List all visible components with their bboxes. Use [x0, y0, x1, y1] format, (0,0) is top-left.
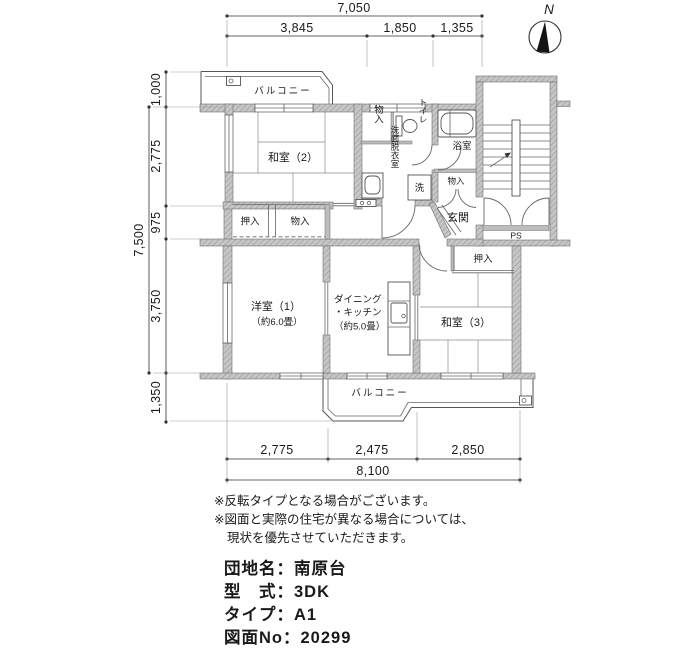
- window-dk-balcony: [347, 373, 387, 379]
- closet3-label: 押入: [473, 253, 493, 265]
- dim-top-seg3: 1,355: [440, 21, 473, 35]
- info-drawing-number: 図面No：20299: [224, 628, 351, 647]
- kitchen-counter-icon: [388, 282, 410, 355]
- washitsu2-label: 和室（2）: [268, 150, 318, 164]
- storage-mid-label: 物入: [290, 216, 310, 228]
- dim-bottom-seg3: 2,850: [451, 443, 484, 457]
- landing-doors: [484, 198, 549, 225]
- closet-mid-label: 押入: [240, 216, 260, 228]
- note-line-3: 現状を優先させていただきます。: [227, 531, 413, 545]
- scale-icon: [356, 200, 376, 207]
- bathtub-icon: [438, 110, 476, 137]
- dk-label-2: ・キッチン: [334, 308, 382, 319]
- dim-top-seg2: 1,850: [383, 21, 416, 35]
- yoshitsu1-label: 洋室（1）: [251, 299, 301, 313]
- info-plan-type: タイプ：A1: [224, 604, 317, 624]
- dim-left-seg2: 2,775: [149, 139, 163, 172]
- stair-rail: [512, 120, 520, 196]
- note-line-2: ※図面と実際の住宅が異なる場合については、: [214, 512, 474, 527]
- entry-label: 玄関: [447, 210, 469, 224]
- pipe-space-label: PS: [510, 231, 522, 241]
- info-layout-type: 型 式：3DK: [224, 581, 330, 601]
- window-yoshitsu1-balcony: [280, 373, 323, 379]
- washroom-label: 洗面脱衣室: [390, 125, 400, 168]
- dk-label-1: ダイニング: [334, 294, 382, 306]
- dim-left-seg5: 1,350: [149, 381, 163, 414]
- north-label: N: [544, 2, 554, 17]
- dim-top-total: 7,050: [337, 1, 370, 15]
- washroom-door: [382, 205, 415, 238]
- drain-box-icon: [520, 396, 532, 405]
- dim-left-seg3: 975: [149, 211, 163, 233]
- storage-entry-label: 物入: [447, 176, 465, 186]
- dim-left-seg4: 3,750: [149, 289, 163, 322]
- entry-storage-doors: [438, 189, 476, 208]
- dimension-top: 7,050 3,845 1,850 1,355: [225, 1, 483, 67]
- window-washitsu2-west: [225, 115, 233, 172]
- window-washitsu2-balcony: [255, 104, 313, 112]
- dk-size-label: （約5.0畳）: [334, 321, 385, 333]
- washitsu3-label: 和室（3）: [441, 315, 491, 329]
- toilet-door: [412, 145, 432, 165]
- info-block: 団地名：南原台 型 式：3DK タイプ：A1 図面No：20299: [224, 558, 351, 647]
- yoshitsu1-size-label: （約6.0畳）: [251, 316, 302, 328]
- note-line-1: ※反転タイプとなる場合がございます。: [214, 493, 435, 508]
- bath-label: 浴室: [452, 140, 471, 152]
- dim-top-seg1: 3,845: [280, 21, 313, 35]
- balcony-top-label: バルコニー: [254, 86, 311, 97]
- dim-bottom-seg1: 2,775: [260, 443, 293, 457]
- laundry-label: 洗: [415, 182, 425, 194]
- dim-left-seg1: 1,000: [149, 73, 163, 106]
- dim-left-total: 7,500: [132, 223, 146, 256]
- dk-door: [419, 243, 447, 271]
- washbasin-icon: [362, 173, 383, 198]
- storage-top-label: 物入: [372, 104, 384, 124]
- dim-bottom-total: 8,100: [356, 464, 389, 478]
- balcony-bottom-outline: [323, 379, 533, 421]
- info-estate-name: 団地名：南原台: [224, 558, 347, 578]
- floor-plan-drawing: バルコニー 和室（2） 物入 トイレ 洗面脱衣室 洗 浴室 物入 玄関 PS 押…: [0, 0, 700, 650]
- window-yoshitsu1-west: [223, 283, 232, 343]
- dim-bottom-seg2: 2,475: [355, 443, 388, 457]
- balcony-bottom-label: バルコニー: [351, 388, 408, 399]
- notes-block: ※反転タイプとなる場合がございます。 ※図面と実際の住宅が異なる場合については、…: [214, 493, 474, 545]
- staircase: [483, 120, 550, 225]
- window-washitsu3-balcony: [441, 373, 503, 379]
- compass: N: [529, 2, 561, 53]
- toilet-label: トイレ: [418, 98, 428, 124]
